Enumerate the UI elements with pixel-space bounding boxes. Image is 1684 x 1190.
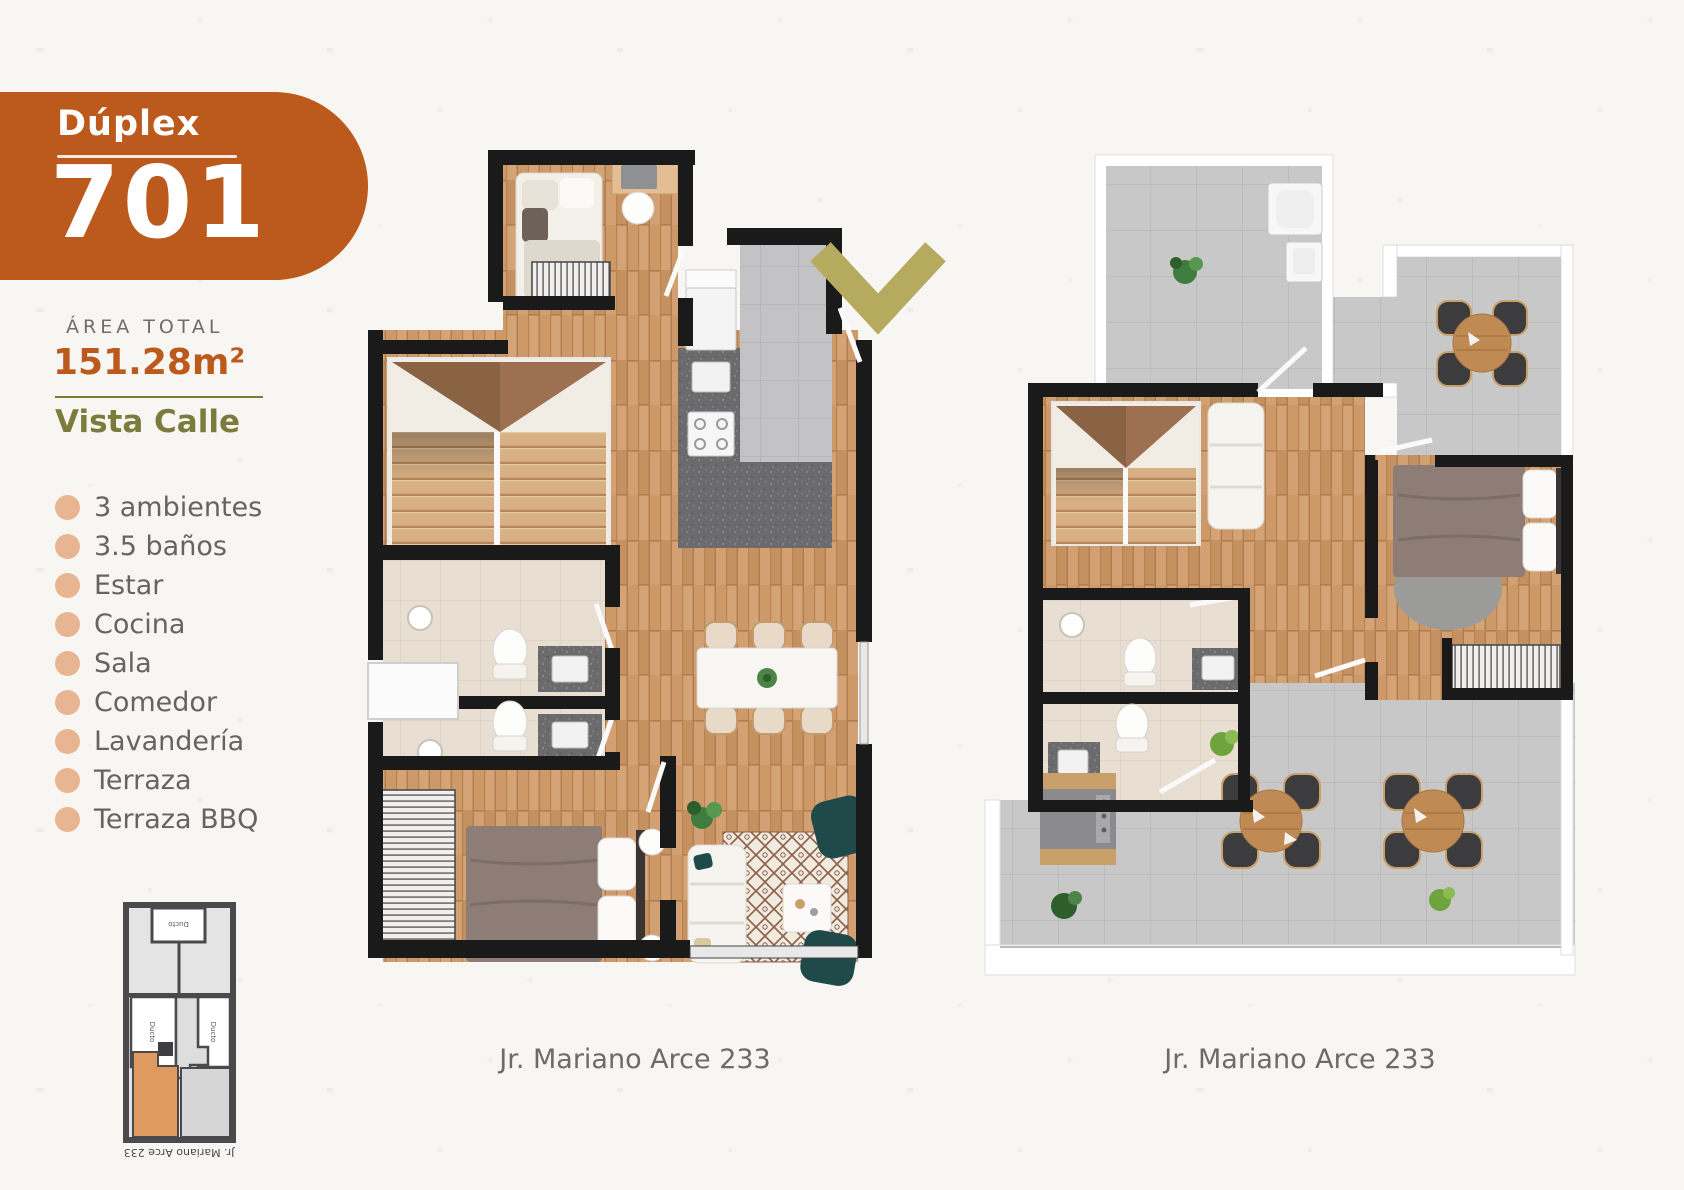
plan2-upper-terrace bbox=[1333, 245, 1573, 457]
balcony-door bbox=[860, 642, 868, 744]
vanity-sink bbox=[552, 722, 588, 748]
feature-bullet-dot bbox=[55, 573, 80, 598]
bbq-grill bbox=[1040, 773, 1116, 865]
unit-type-label: Dúplex bbox=[57, 104, 200, 144]
plan2-laundry-terrace bbox=[1095, 155, 1333, 400]
area-total-value: 151.28m² bbox=[53, 342, 245, 383]
feature-bullet-dot bbox=[55, 768, 80, 793]
feature-item: 3.5 baños bbox=[55, 533, 262, 559]
duct-label: Ducto bbox=[168, 920, 189, 928]
bath-divider-wall bbox=[1043, 692, 1250, 704]
plan2-sofa bbox=[1208, 403, 1264, 529]
second-floor-caption: Jr. Mariano Arce 233 bbox=[1050, 1044, 1550, 1075]
key-plan-neighbor-unit bbox=[181, 1068, 230, 1137]
feature-bullet-dot bbox=[55, 690, 80, 715]
feature-item: 3 ambientes bbox=[55, 494, 262, 520]
wardrobe bbox=[1452, 645, 1560, 691]
kitchen-shelf bbox=[686, 270, 736, 288]
kitchen-peninsula bbox=[678, 462, 832, 548]
unit-number: 701 bbox=[50, 144, 268, 261]
feature-label: Cocina bbox=[94, 609, 185, 640]
feature-bullet-dot bbox=[55, 729, 80, 754]
feature-item: Sala bbox=[55, 650, 262, 676]
bed-duvet bbox=[1393, 465, 1525, 577]
parapet-wall bbox=[1561, 695, 1573, 955]
feature-item: Terraza BBQ bbox=[55, 806, 262, 832]
parapet-wall bbox=[1383, 245, 1573, 257]
feature-label: Estar bbox=[94, 570, 163, 601]
feature-bullet-dot bbox=[55, 534, 80, 559]
parapet-wall bbox=[985, 945, 1575, 975]
feature-label: Comedor bbox=[94, 687, 217, 718]
window bbox=[690, 946, 858, 958]
sofa-pillow bbox=[522, 180, 558, 210]
plan2-bedroom bbox=[1365, 455, 1573, 700]
first-floor-caption: Jr. Mariano Arce 233 bbox=[385, 1044, 885, 1075]
toilet-tank bbox=[493, 736, 527, 751]
sofa-throw bbox=[522, 208, 548, 242]
feature-list: 3 ambientes 3.5 baños Estar Cocina Sala … bbox=[55, 494, 262, 845]
plan2-stairs bbox=[1052, 402, 1200, 545]
key-plan-core bbox=[158, 1042, 173, 1056]
coffee-table-decor bbox=[810, 908, 818, 916]
second-floor-plan bbox=[985, 155, 1575, 975]
feature-item: Terraza bbox=[55, 767, 262, 793]
table-plant-center bbox=[763, 674, 771, 682]
feature-label: 3.5 baños bbox=[94, 531, 227, 562]
laundry-sink-basin bbox=[1293, 248, 1315, 274]
toilet-tank bbox=[493, 664, 527, 679]
feature-bullet-dot bbox=[55, 495, 80, 520]
parapet-wall bbox=[1561, 245, 1573, 457]
feature-label: Lavandería bbox=[94, 726, 244, 757]
kitchen-floor bbox=[740, 245, 832, 462]
feature-bullet-dot bbox=[55, 807, 80, 832]
feature-item: Lavandería bbox=[55, 728, 262, 754]
feature-label: 3 ambientes bbox=[94, 492, 262, 523]
coffee-table bbox=[783, 884, 831, 932]
coffee-table-decor bbox=[795, 899, 805, 909]
flyer-page: Dúplex 701 ÁREA TOTAL 151.28m² Vista Cal… bbox=[0, 0, 1684, 1190]
stove bbox=[688, 412, 734, 456]
wardrobe bbox=[375, 790, 455, 956]
bed-pillow bbox=[598, 838, 636, 890]
first-floor-plan bbox=[368, 150, 874, 988]
area-total-label: ÁREA TOTAL bbox=[66, 316, 224, 338]
chevron-down-icon bbox=[830, 262, 926, 314]
view-label: Vista Calle bbox=[55, 404, 240, 440]
kitchen-sink bbox=[692, 362, 730, 392]
plan2-bathrooms bbox=[1043, 596, 1250, 800]
shower-head bbox=[1060, 613, 1084, 637]
plan1-dining bbox=[697, 622, 837, 734]
plan1-stairs bbox=[388, 358, 610, 548]
bed-pillow bbox=[1523, 470, 1557, 518]
unit-badge: Dúplex 701 bbox=[0, 92, 368, 280]
toilet-tank bbox=[1124, 672, 1156, 686]
feature-label: Sala bbox=[94, 648, 152, 679]
bed-pillow bbox=[1523, 523, 1557, 571]
vanity-sink bbox=[552, 656, 588, 682]
feature-item: Comedor bbox=[55, 689, 262, 715]
view-divider bbox=[55, 396, 263, 398]
feature-label: Terraza BBQ bbox=[94, 804, 258, 835]
plan1-kitchen bbox=[678, 245, 832, 548]
water-heater-lid bbox=[1276, 190, 1314, 228]
desk-stool bbox=[622, 192, 654, 224]
feature-bullet-dot bbox=[55, 612, 80, 637]
duct-label: Ducto bbox=[209, 1022, 217, 1043]
key-plan-street-label: Jr. Mariano Arce 233 bbox=[124, 1146, 236, 1159]
feature-item: Estar bbox=[55, 572, 262, 598]
laptop bbox=[621, 165, 657, 189]
feature-item: Cocina bbox=[55, 611, 262, 637]
toilet-tank bbox=[1116, 738, 1148, 752]
key-plan: Ducto Ducto Ducto Jr. Mariano Arce 233 bbox=[124, 905, 236, 1159]
feature-label: Terraza bbox=[94, 765, 192, 796]
shower-head bbox=[408, 606, 432, 630]
vanity-sink bbox=[1202, 656, 1234, 680]
duct-label: Ducto bbox=[148, 1022, 156, 1043]
laundry-machine bbox=[368, 663, 458, 719]
feature-bullet-dot bbox=[55, 651, 80, 676]
vanity-sink bbox=[1058, 750, 1088, 774]
terrace-walkway bbox=[1333, 297, 1397, 383]
fridge bbox=[686, 288, 736, 350]
parapet-wall bbox=[1383, 245, 1397, 297]
sofa-pillow bbox=[560, 178, 594, 208]
